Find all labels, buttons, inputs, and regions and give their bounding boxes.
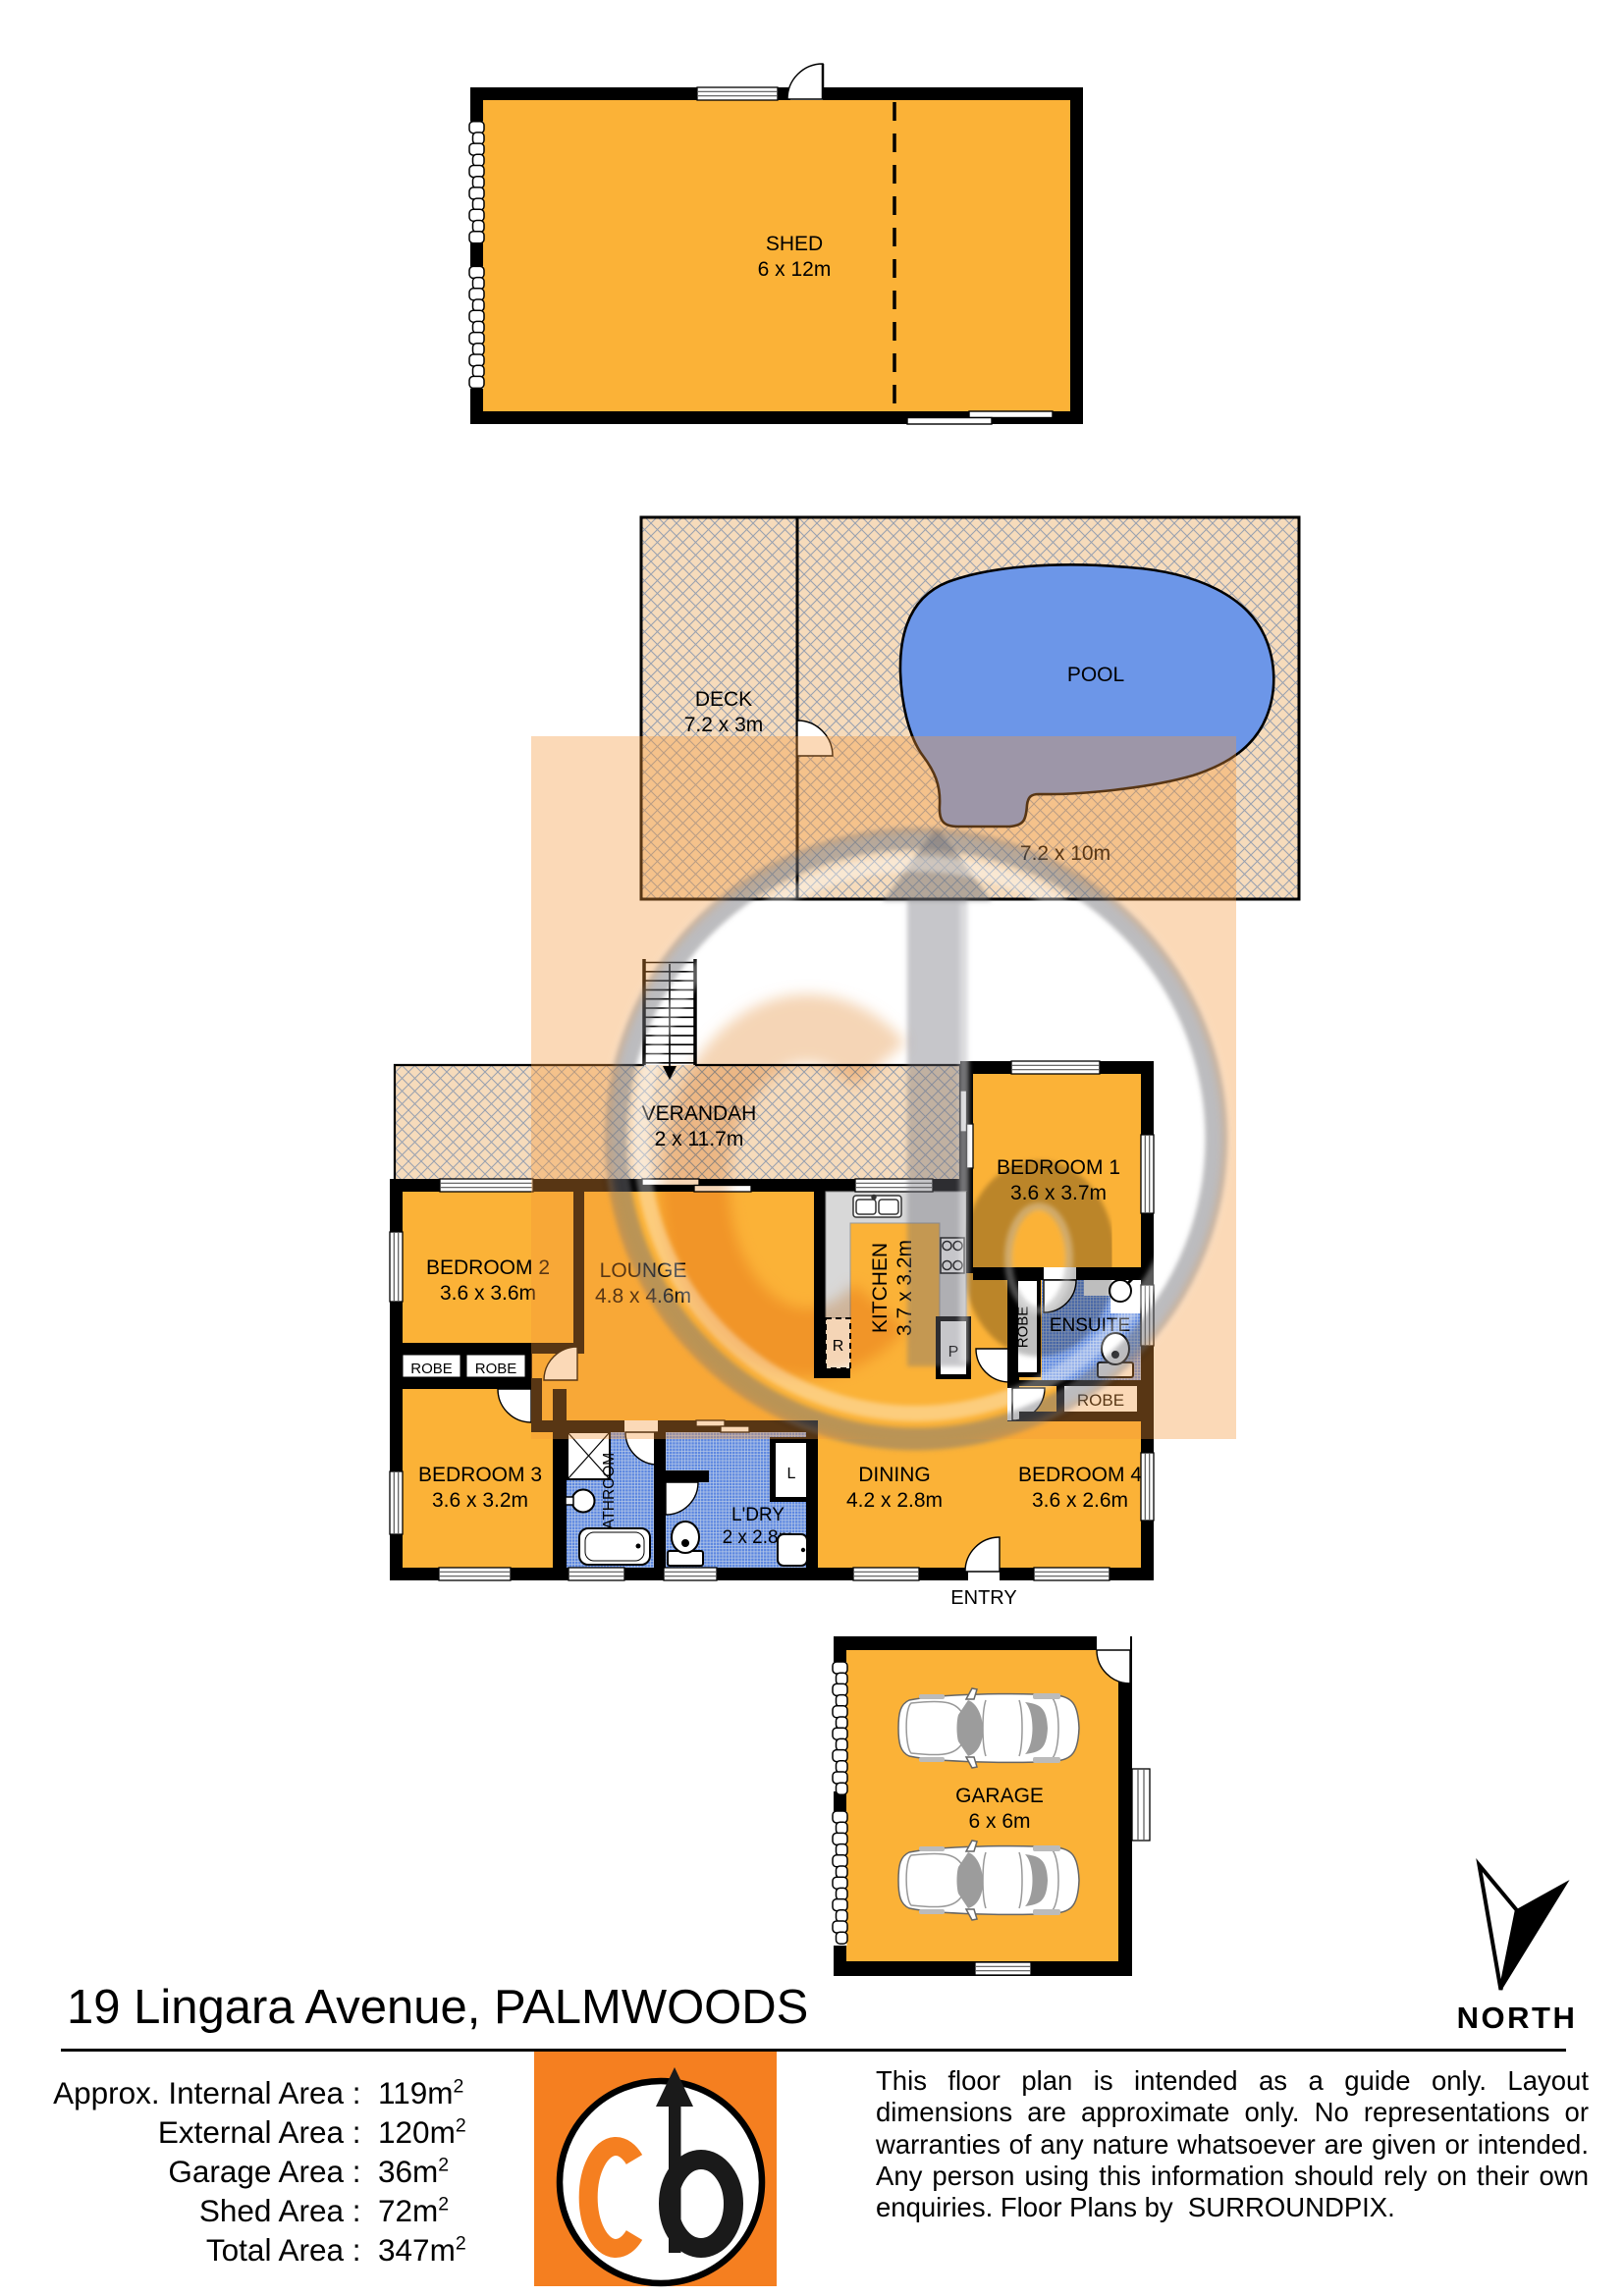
svg-text:L: L [787,1466,796,1482]
svg-text:NORTH: NORTH [1457,2001,1578,2035]
svg-text:6 x 12m: 6 x 12m [758,258,832,281]
svg-text:ROBE: ROBE [410,1361,453,1377]
svg-text:3.6 x 3.2m: 3.6 x 3.2m [432,1489,528,1512]
svg-text:POOL: POOL [1067,664,1124,686]
svg-text:BATHROOM: BATHROOM [601,1453,618,1539]
svg-text:ROBE: ROBE [475,1361,517,1377]
svg-text:ENTRY: ENTRY [950,1587,1016,1609]
svg-text:4.2 x 2.8m: 4.2 x 2.8m [846,1489,943,1512]
svg-text:7.2 x 3m: 7.2 x 3m [684,714,764,736]
svg-text:L'DRY: L'DRY [731,1505,785,1525]
svg-text:BEDROOM 4: BEDROOM 4 [1018,1464,1142,1486]
svg-text:DECK: DECK [695,688,752,711]
svg-text:6 x 6m: 6 x 6m [968,1810,1030,1833]
svg-text:3.6 x 2.6m: 3.6 x 2.6m [1032,1489,1128,1512]
svg-text:BEDROOM 3: BEDROOM 3 [418,1464,542,1486]
svg-text:GARAGE: GARAGE [955,1785,1044,1807]
svg-text:3.6 x 3.6m: 3.6 x 3.6m [440,1282,536,1305]
svg-text:SHED: SHED [766,233,823,255]
svg-text:DINING: DINING [858,1464,931,1486]
